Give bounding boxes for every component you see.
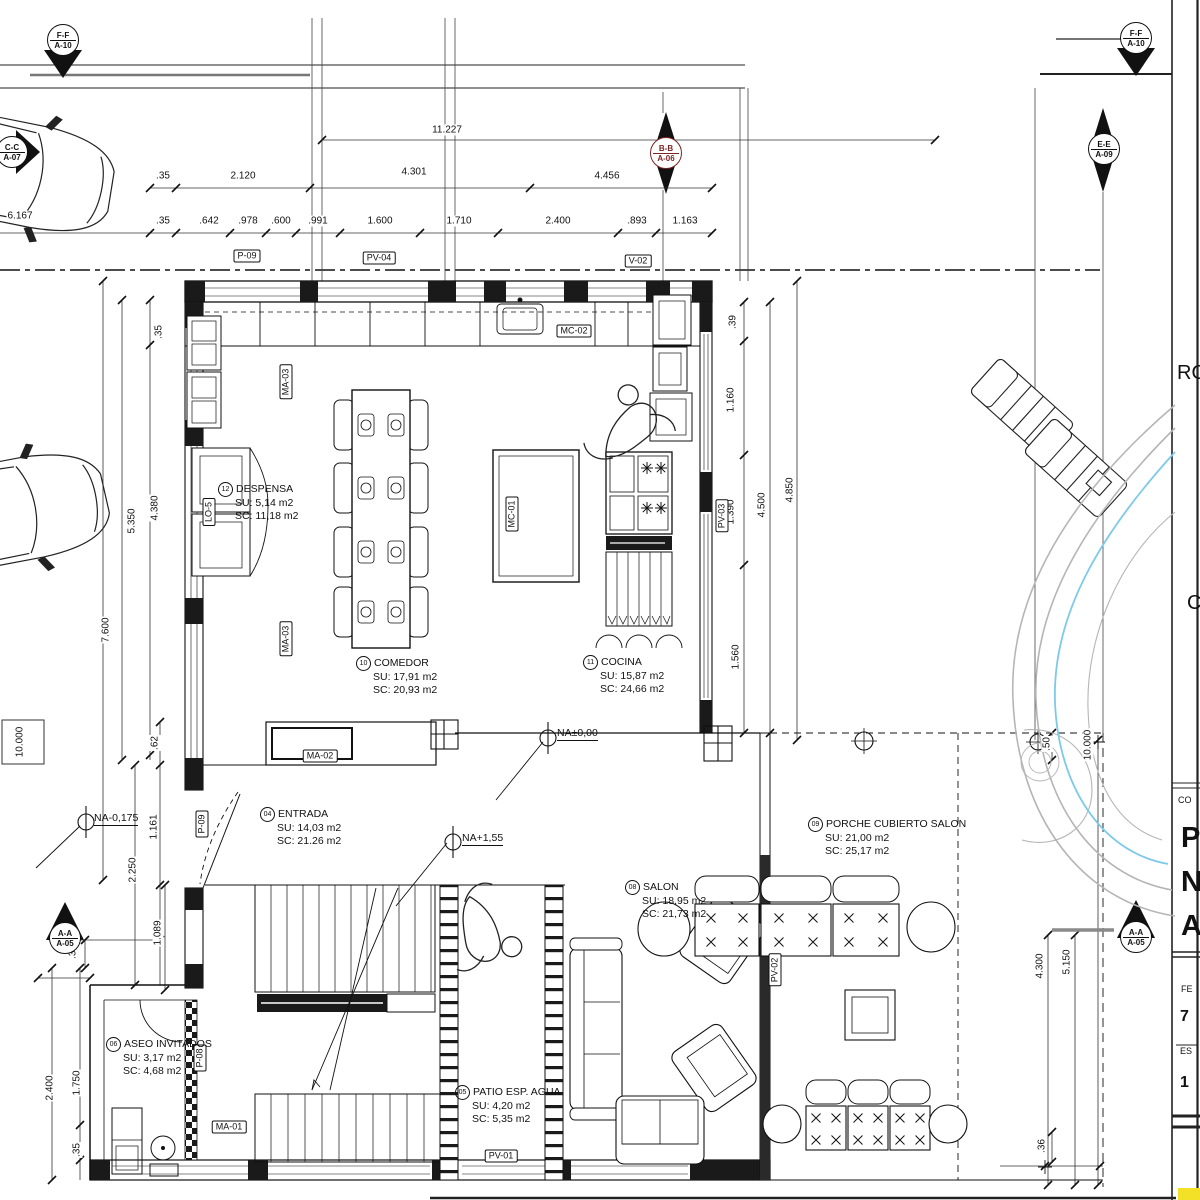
room-sc-area: SC: 21,73 m2 bbox=[642, 908, 706, 921]
title-block-text: ES bbox=[1180, 1046, 1192, 1056]
section-label: F-F bbox=[57, 31, 69, 40]
section-sheet-ref: A-06 bbox=[653, 153, 679, 163]
component-tag: V-02 bbox=[625, 255, 652, 268]
dimension-label: 4.300 bbox=[1035, 952, 1046, 979]
dimension-label: 10.000 bbox=[1083, 729, 1094, 762]
room-su-area: SU: 3,17 m2 bbox=[123, 1052, 212, 1065]
dimension-label: .991 bbox=[307, 216, 328, 227]
dimension-label: 1.163 bbox=[671, 216, 698, 227]
dimension-label: 1.089 bbox=[153, 919, 164, 946]
room-number: 09 bbox=[808, 817, 823, 832]
title-block-text: 1 bbox=[1180, 1074, 1189, 1092]
level-annotation: NA±0,00 bbox=[557, 727, 598, 741]
dimension-label: 4.301 bbox=[400, 167, 427, 178]
section-marker: E-EA-09 bbox=[1088, 133, 1120, 165]
dimension-label: 5.350 bbox=[127, 507, 138, 534]
dimension-label: 4.500 bbox=[757, 491, 768, 518]
component-tag: P-09 bbox=[233, 250, 260, 263]
section-marker: F-FA-10 bbox=[1120, 22, 1152, 54]
dimension-label: .642 bbox=[198, 216, 219, 227]
room-label: 11COCINASU: 15,87 m2SC: 24,66 m2 bbox=[583, 655, 664, 696]
room-label: 05PATIO ESP. AGUASU: 4,20 m2SC: 5,35 m2 bbox=[455, 1085, 561, 1126]
level-annotation: NA-0,175 bbox=[94, 812, 138, 826]
room-label: 09PORCHE CUBIERTO SALONSU: 21,00 m2SC: 2… bbox=[808, 817, 966, 858]
dimension-label: .62 bbox=[150, 735, 161, 751]
component-tag: MC-01 bbox=[506, 496, 519, 531]
component-tag: MA-03 bbox=[280, 365, 293, 400]
room-label: 04ENTRADASU: 14,03 m2SC: 21.26 m2 bbox=[260, 807, 341, 848]
room-name: COCINA bbox=[601, 656, 642, 669]
section-marker: F-FA-10 bbox=[47, 24, 79, 56]
room-name: PORCHE CUBIERTO SALON bbox=[826, 818, 966, 831]
room-su-area: SU: 21,00 m2 bbox=[825, 832, 966, 845]
room-sc-area: SC: 21.26 m2 bbox=[277, 835, 341, 848]
section-label: B-B bbox=[659, 144, 673, 153]
component-tag: PV-01 bbox=[485, 1150, 518, 1163]
dimension-label: .893 bbox=[626, 216, 647, 227]
title-block-text: C bbox=[1187, 592, 1200, 615]
room-sc-area: SC: 24,66 m2 bbox=[600, 683, 664, 696]
room-name: PATIO ESP. AGUA bbox=[473, 1086, 561, 1099]
floor-plan-page: 11.227.352.1204.3014.4566.167.35.642.978… bbox=[0, 0, 1200, 1200]
dimension-label: 1.710 bbox=[445, 216, 472, 227]
dimension-label: 4.456 bbox=[593, 171, 620, 182]
room-label: 10COMEDORSU: 17,91 m2SC: 20,93 m2 bbox=[356, 656, 437, 697]
dimension-label: 1.750 bbox=[72, 1069, 83, 1096]
room-su-area: SU: 17,91 m2 bbox=[373, 671, 437, 684]
room-sc-area: SC: 20,93 m2 bbox=[373, 684, 437, 697]
dimension-label: .35 bbox=[72, 1142, 83, 1158]
dimension-label: .35 bbox=[154, 324, 165, 340]
component-tag: MC-02 bbox=[556, 325, 591, 338]
room-sc-area: SC: 5,35 m2 bbox=[472, 1113, 561, 1126]
room-number: 08 bbox=[625, 880, 640, 895]
room-sc-area: SC: 25,17 m2 bbox=[825, 845, 966, 858]
room-su-area: SU: 5,14 m2 bbox=[235, 497, 298, 510]
room-su-area: SU: 15,87 m2 bbox=[600, 670, 664, 683]
dimension-label: .978 bbox=[237, 216, 258, 227]
title-block-text: RO bbox=[1177, 362, 1200, 385]
dimension-label: 11.227 bbox=[431, 125, 463, 136]
dimension-label: 1.160 bbox=[726, 386, 737, 413]
dimension-label: 5.150 bbox=[1062, 948, 1073, 975]
room-number: 05 bbox=[455, 1085, 470, 1100]
dimension-label: 1.560 bbox=[731, 643, 742, 670]
room-label: 12DESPENSASU: 5,14 m2SC: 11,18 m2 bbox=[218, 482, 298, 523]
dimension-label: .35 bbox=[155, 216, 171, 227]
dimension-label: 6.167 bbox=[6, 211, 33, 222]
section-sheet-ref: A-09 bbox=[1091, 149, 1117, 159]
dimension-label: 7.600 bbox=[101, 616, 112, 643]
room-name: SALON bbox=[643, 881, 679, 894]
dimension-label: 4.380 bbox=[150, 494, 161, 521]
room-name: ASEO INVITADOS bbox=[124, 1038, 212, 1051]
section-marker: A-AA-05 bbox=[1120, 921, 1152, 953]
room-label: 08SALONSU: 18,95 m2SC: 21,73 m2 bbox=[625, 880, 706, 921]
section-label: E-E bbox=[1097, 140, 1110, 149]
section-label: A-A bbox=[1129, 928, 1143, 937]
room-number: 11 bbox=[583, 655, 598, 670]
level-annotation: NA+1,55 bbox=[462, 832, 503, 846]
title-block-text: N bbox=[1181, 866, 1200, 899]
dimension-label: 2.120 bbox=[229, 171, 256, 182]
section-sheet-ref: A-10 bbox=[50, 40, 76, 50]
dimension-label: 2.250 bbox=[128, 856, 139, 883]
title-block-text: CO bbox=[1178, 795, 1192, 805]
room-label: 06ASEO INVITADOSSU: 3,17 m2SC: 4,68 m2 bbox=[106, 1037, 212, 1078]
dimension-label: 2.400 bbox=[544, 216, 571, 227]
room-su-area: SU: 4,20 m2 bbox=[472, 1100, 561, 1113]
room-su-area: SU: 14,03 m2 bbox=[277, 822, 341, 835]
dimension-label: .36 bbox=[1037, 1138, 1048, 1154]
component-tag: MA-03 bbox=[280, 622, 293, 657]
dimension-label: 2.400 bbox=[45, 1074, 56, 1101]
dimension-label: 4.850 bbox=[785, 476, 796, 503]
room-su-area: SU: 18,95 m2 bbox=[642, 895, 706, 908]
dimension-label: 10.000 bbox=[15, 726, 26, 759]
section-label: F-F bbox=[1130, 29, 1142, 38]
dimension-label: 1.600 bbox=[366, 216, 393, 227]
section-label: A-A bbox=[58, 929, 72, 938]
component-tag: PV-02 bbox=[769, 954, 782, 987]
annotation-layer: 11.227.352.1204.3014.4566.167.35.642.978… bbox=[0, 0, 1200, 1200]
title-block-text: 7 bbox=[1180, 1008, 1189, 1026]
room-name: COMEDOR bbox=[374, 657, 429, 670]
section-label: C-C bbox=[5, 143, 19, 152]
component-tag: LO-5 bbox=[203, 498, 216, 526]
room-number: 12 bbox=[218, 482, 233, 497]
room-number: 06 bbox=[106, 1037, 121, 1052]
section-marker: A-AA-05 bbox=[49, 922, 81, 954]
section-marker: B-BA-06 bbox=[650, 137, 682, 169]
section-sheet-ref: A-10 bbox=[1123, 38, 1149, 48]
section-sheet-ref: A-05 bbox=[52, 938, 78, 948]
component-tag: PV-03 bbox=[716, 500, 729, 533]
component-tag: P-09 bbox=[196, 810, 209, 837]
room-number: 04 bbox=[260, 807, 275, 822]
room-name: DESPENSA bbox=[236, 483, 293, 496]
dimension-label: .600 bbox=[270, 216, 291, 227]
title-block-text: A bbox=[1181, 910, 1200, 943]
dimension-label: 1.161 bbox=[149, 813, 160, 840]
section-sheet-ref: A-07 bbox=[0, 152, 25, 162]
room-sc-area: SC: 11,18 m2 bbox=[235, 510, 298, 523]
dimension-label: .50 bbox=[1042, 736, 1053, 752]
component-tag: MA-02 bbox=[303, 750, 338, 763]
room-name: ENTRADA bbox=[278, 808, 328, 821]
component-tag: PV-04 bbox=[363, 252, 396, 265]
title-block-text: P bbox=[1181, 822, 1200, 855]
section-sheet-ref: A-05 bbox=[1123, 937, 1149, 947]
section-marker: C-CA-07 bbox=[0, 136, 28, 168]
dimension-label: .39 bbox=[728, 314, 739, 330]
component-tag: MA-01 bbox=[212, 1121, 247, 1134]
room-number: 10 bbox=[356, 656, 371, 671]
room-sc-area: SC: 4,68 m2 bbox=[123, 1065, 212, 1078]
title-block-text: FE bbox=[1181, 984, 1193, 994]
dimension-label: .35 bbox=[155, 171, 171, 182]
